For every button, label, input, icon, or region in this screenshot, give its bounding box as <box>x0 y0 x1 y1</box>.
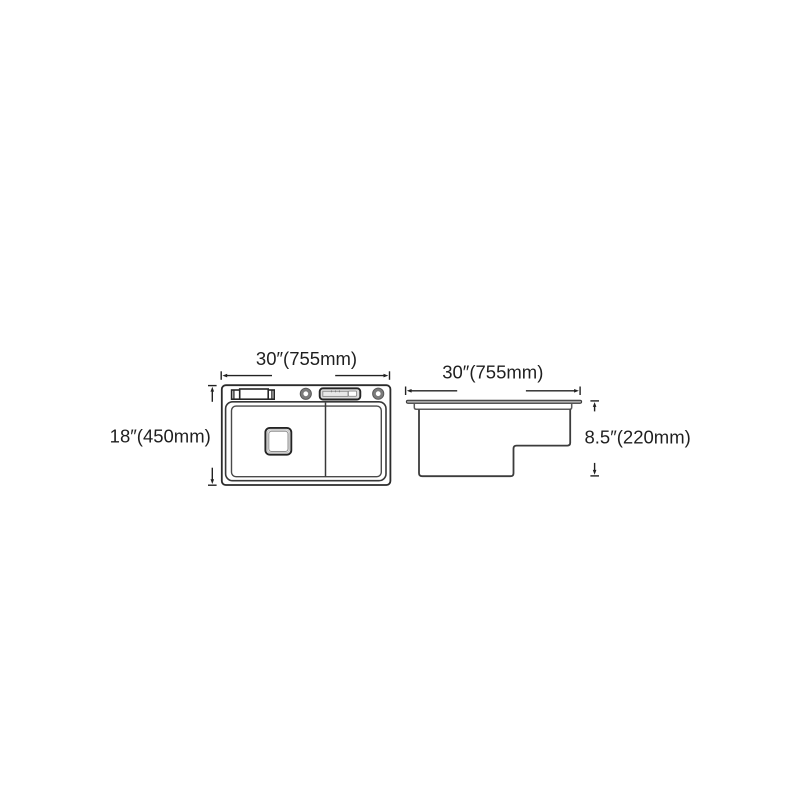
svg-text:30″(755mm): 30″(755mm) <box>256 348 357 369</box>
svg-text:8.5″(220mm): 8.5″(220mm) <box>585 427 691 448</box>
svg-text:30″(755mm): 30″(755mm) <box>442 362 543 383</box>
svg-text:18″(450mm): 18″(450mm) <box>110 426 211 447</box>
